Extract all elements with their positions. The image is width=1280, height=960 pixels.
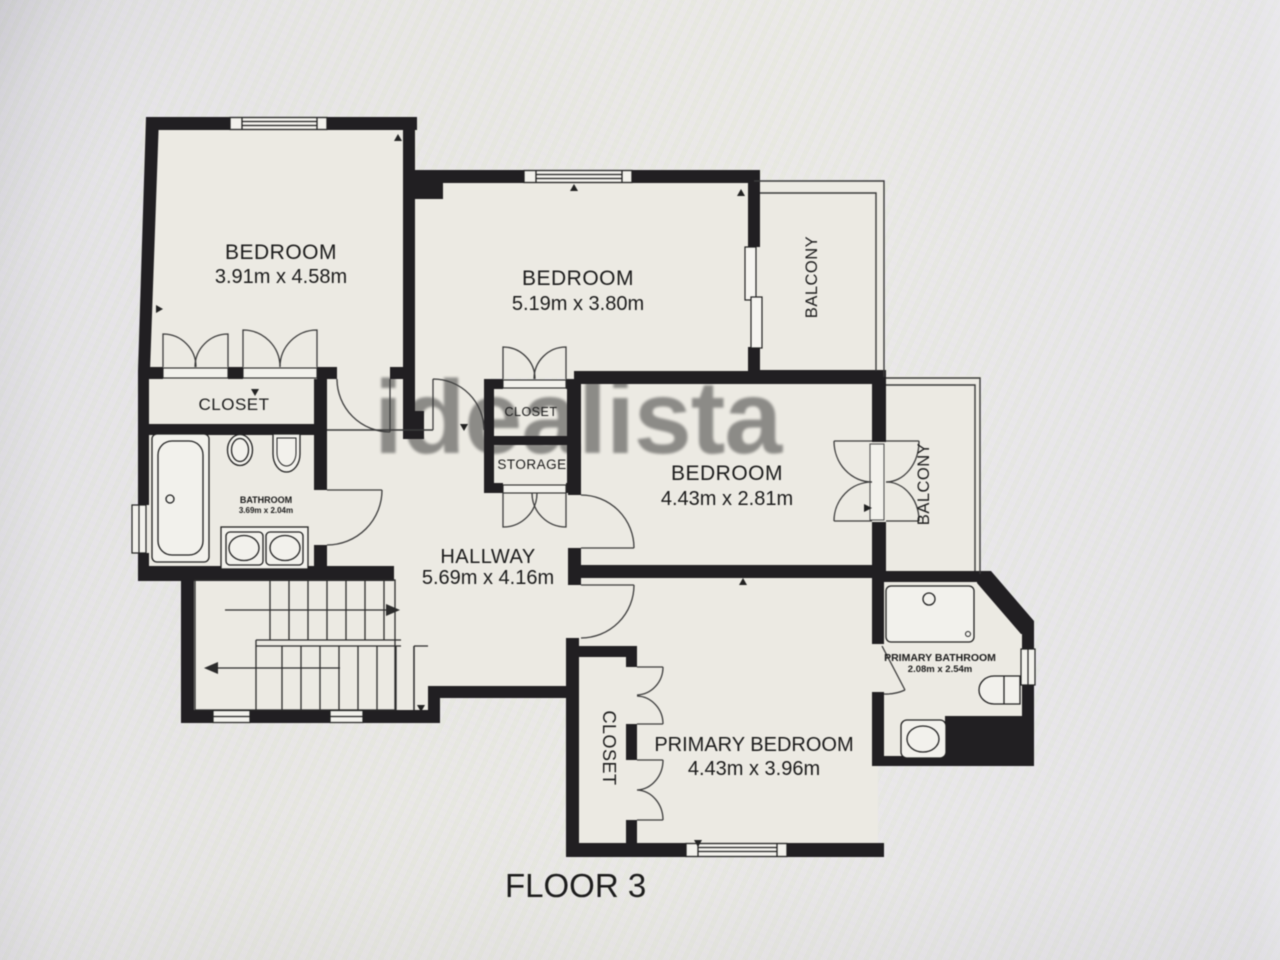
svg-text:PRIMARY BATHROOM: PRIMARY BATHROOM [884,652,996,664]
svg-text:3.69m x 2.04m: 3.69m x 2.04m [239,506,293,515]
svg-text:CLOSET: CLOSET [504,405,557,419]
svg-text:BEDROOM: BEDROOM [522,267,634,290]
svg-text:BEDROOM: BEDROOM [225,241,337,264]
svg-text:CLOSET: CLOSET [198,395,269,414]
svg-text:BALCONY: BALCONY [915,443,933,525]
svg-text:BATHROOM: BATHROOM [240,495,292,505]
svg-text:CLOSET: CLOSET [599,710,619,785]
svg-text:2.08m x 2.54m: 2.08m x 2.54m [908,664,972,675]
svg-text:HALLWAY: HALLWAY [440,546,535,568]
svg-text:5.19m x 3.80m: 5.19m x 3.80m [512,293,644,315]
svg-text:3.91m x 4.58m: 3.91m x 4.58m [215,266,347,288]
svg-text:5.69m x 4.16m: 5.69m x 4.16m [422,567,554,589]
svg-text:STORAGE: STORAGE [497,457,566,472]
svg-text:FLOOR 3: FLOOR 3 [505,867,646,904]
svg-text:BEDROOM: BEDROOM [671,462,783,485]
svg-text:PRIMARY BEDROOM: PRIMARY BEDROOM [654,734,853,756]
svg-text:4.43m x 2.81m: 4.43m x 2.81m [661,488,793,510]
svg-text:4.43m x 3.96m: 4.43m x 3.96m [688,758,820,780]
svg-text:BALCONY: BALCONY [803,236,821,318]
